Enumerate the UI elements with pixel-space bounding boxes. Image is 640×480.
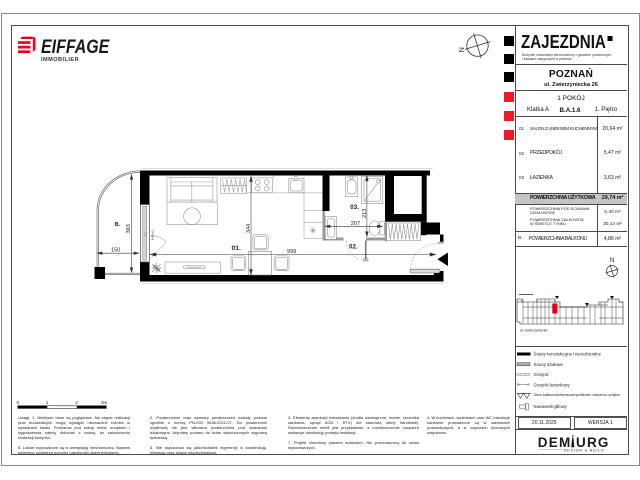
svg-text:213: 213 — [362, 209, 368, 218]
svg-text:0: 0 — [17, 400, 20, 405]
svg-text:Nawiewnik głifowy: Nawiewnik głifowy — [534, 404, 568, 409]
svg-text:Ściany działowe: Ściany działowe — [534, 362, 564, 367]
svg-text:ul. Zwierzyniecka: ul. Zwierzyniecka — [520, 329, 548, 333]
svg-text:01.: 01. — [232, 245, 242, 252]
svg-text:Grzejnik: Grzejnik — [534, 372, 550, 377]
svg-text:Grzejnik łazienkowy: Grzejnik łazienkowy — [534, 382, 571, 387]
svg-text:363: 363 — [126, 224, 132, 233]
svg-text:Ściany konstrukcyjne i nierozb: Ściany konstrukcyjne i nierozbieralne — [534, 352, 602, 357]
svg-text:N: N — [457, 47, 466, 52]
svg-text:999: 999 — [287, 249, 296, 255]
svg-text:3m: 3m — [101, 400, 108, 405]
svg-text:207: 207 — [351, 221, 360, 227]
svg-text:344: 344 — [246, 224, 252, 233]
svg-text:HP=0: HP=0 — [151, 230, 155, 240]
svg-text:1: 1 — [46, 400, 49, 405]
svg-text:B.: B. — [115, 222, 121, 228]
svg-text:DESIGN & BUILD: DESIGN & BUILD — [564, 448, 605, 452]
svg-text:Okno balkonowe/tarasowe/portfe: Okno balkonowe/tarasowe/portfenetr rozwi… — [534, 393, 621, 397]
svg-text:N: N — [610, 258, 614, 264]
svg-text:03.: 03. — [350, 204, 359, 211]
svg-text:2: 2 — [75, 400, 78, 405]
svg-text:02.: 02. — [349, 244, 358, 251]
svg-text:150: 150 — [111, 248, 120, 254]
